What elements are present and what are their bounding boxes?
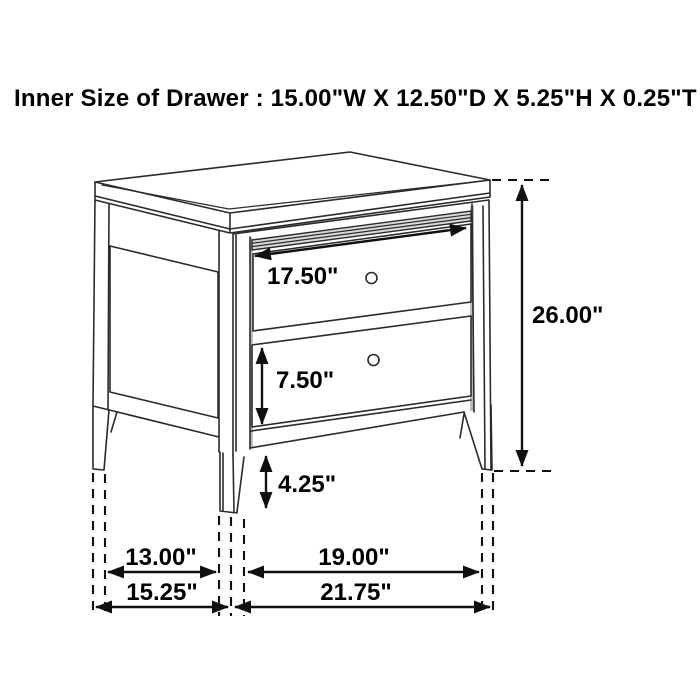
dim-side-leg-inner-span: 13.00" — [108, 544, 216, 572]
dim-side-outer-depth: 15.25" — [96, 579, 228, 607]
dim-label-top-drawer-width: 17.50" — [267, 263, 338, 290]
front-left-leg — [220, 452, 244, 513]
top-surface — [95, 152, 490, 213]
dim-label-front-outer-width: 21.75" — [320, 579, 391, 606]
dim-label-overall-height: 26.00" — [532, 302, 603, 329]
dim-label-leg-height: 4.25" — [278, 471, 336, 498]
nightstand-dimension-diagram: 17.50" 26.00" 7.50" 4.25" 13.00" — [0, 0, 700, 700]
dim-label-side-outer-depth: 15.25" — [126, 579, 197, 606]
dim-label-front-leg-inner-span: 19.00" — [318, 544, 389, 571]
dim-front-outer-width: 21.75" — [235, 579, 490, 607]
nightstand-drawing — [93, 152, 492, 513]
dim-label-side-leg-inner-span: 13.00" — [125, 544, 196, 571]
diagram-page: Inner Size of Drawer : 15.00"W X 12.50"D… — [0, 0, 700, 700]
front-right-leg — [460, 405, 492, 470]
dim-front-leg-inner-span: 19.00" — [248, 544, 479, 572]
side-recessed-panel — [110, 246, 218, 418]
back-left-leg — [93, 406, 117, 470]
top-drawer-knob-icon — [366, 273, 377, 284]
dim-label-bottom-drawer-height: 7.50" — [276, 367, 334, 394]
bottom-drawer-knob-icon — [368, 355, 379, 366]
dim-overall-height: 26.00" — [522, 185, 603, 466]
dim-leg-height: 4.25" — [266, 456, 336, 508]
